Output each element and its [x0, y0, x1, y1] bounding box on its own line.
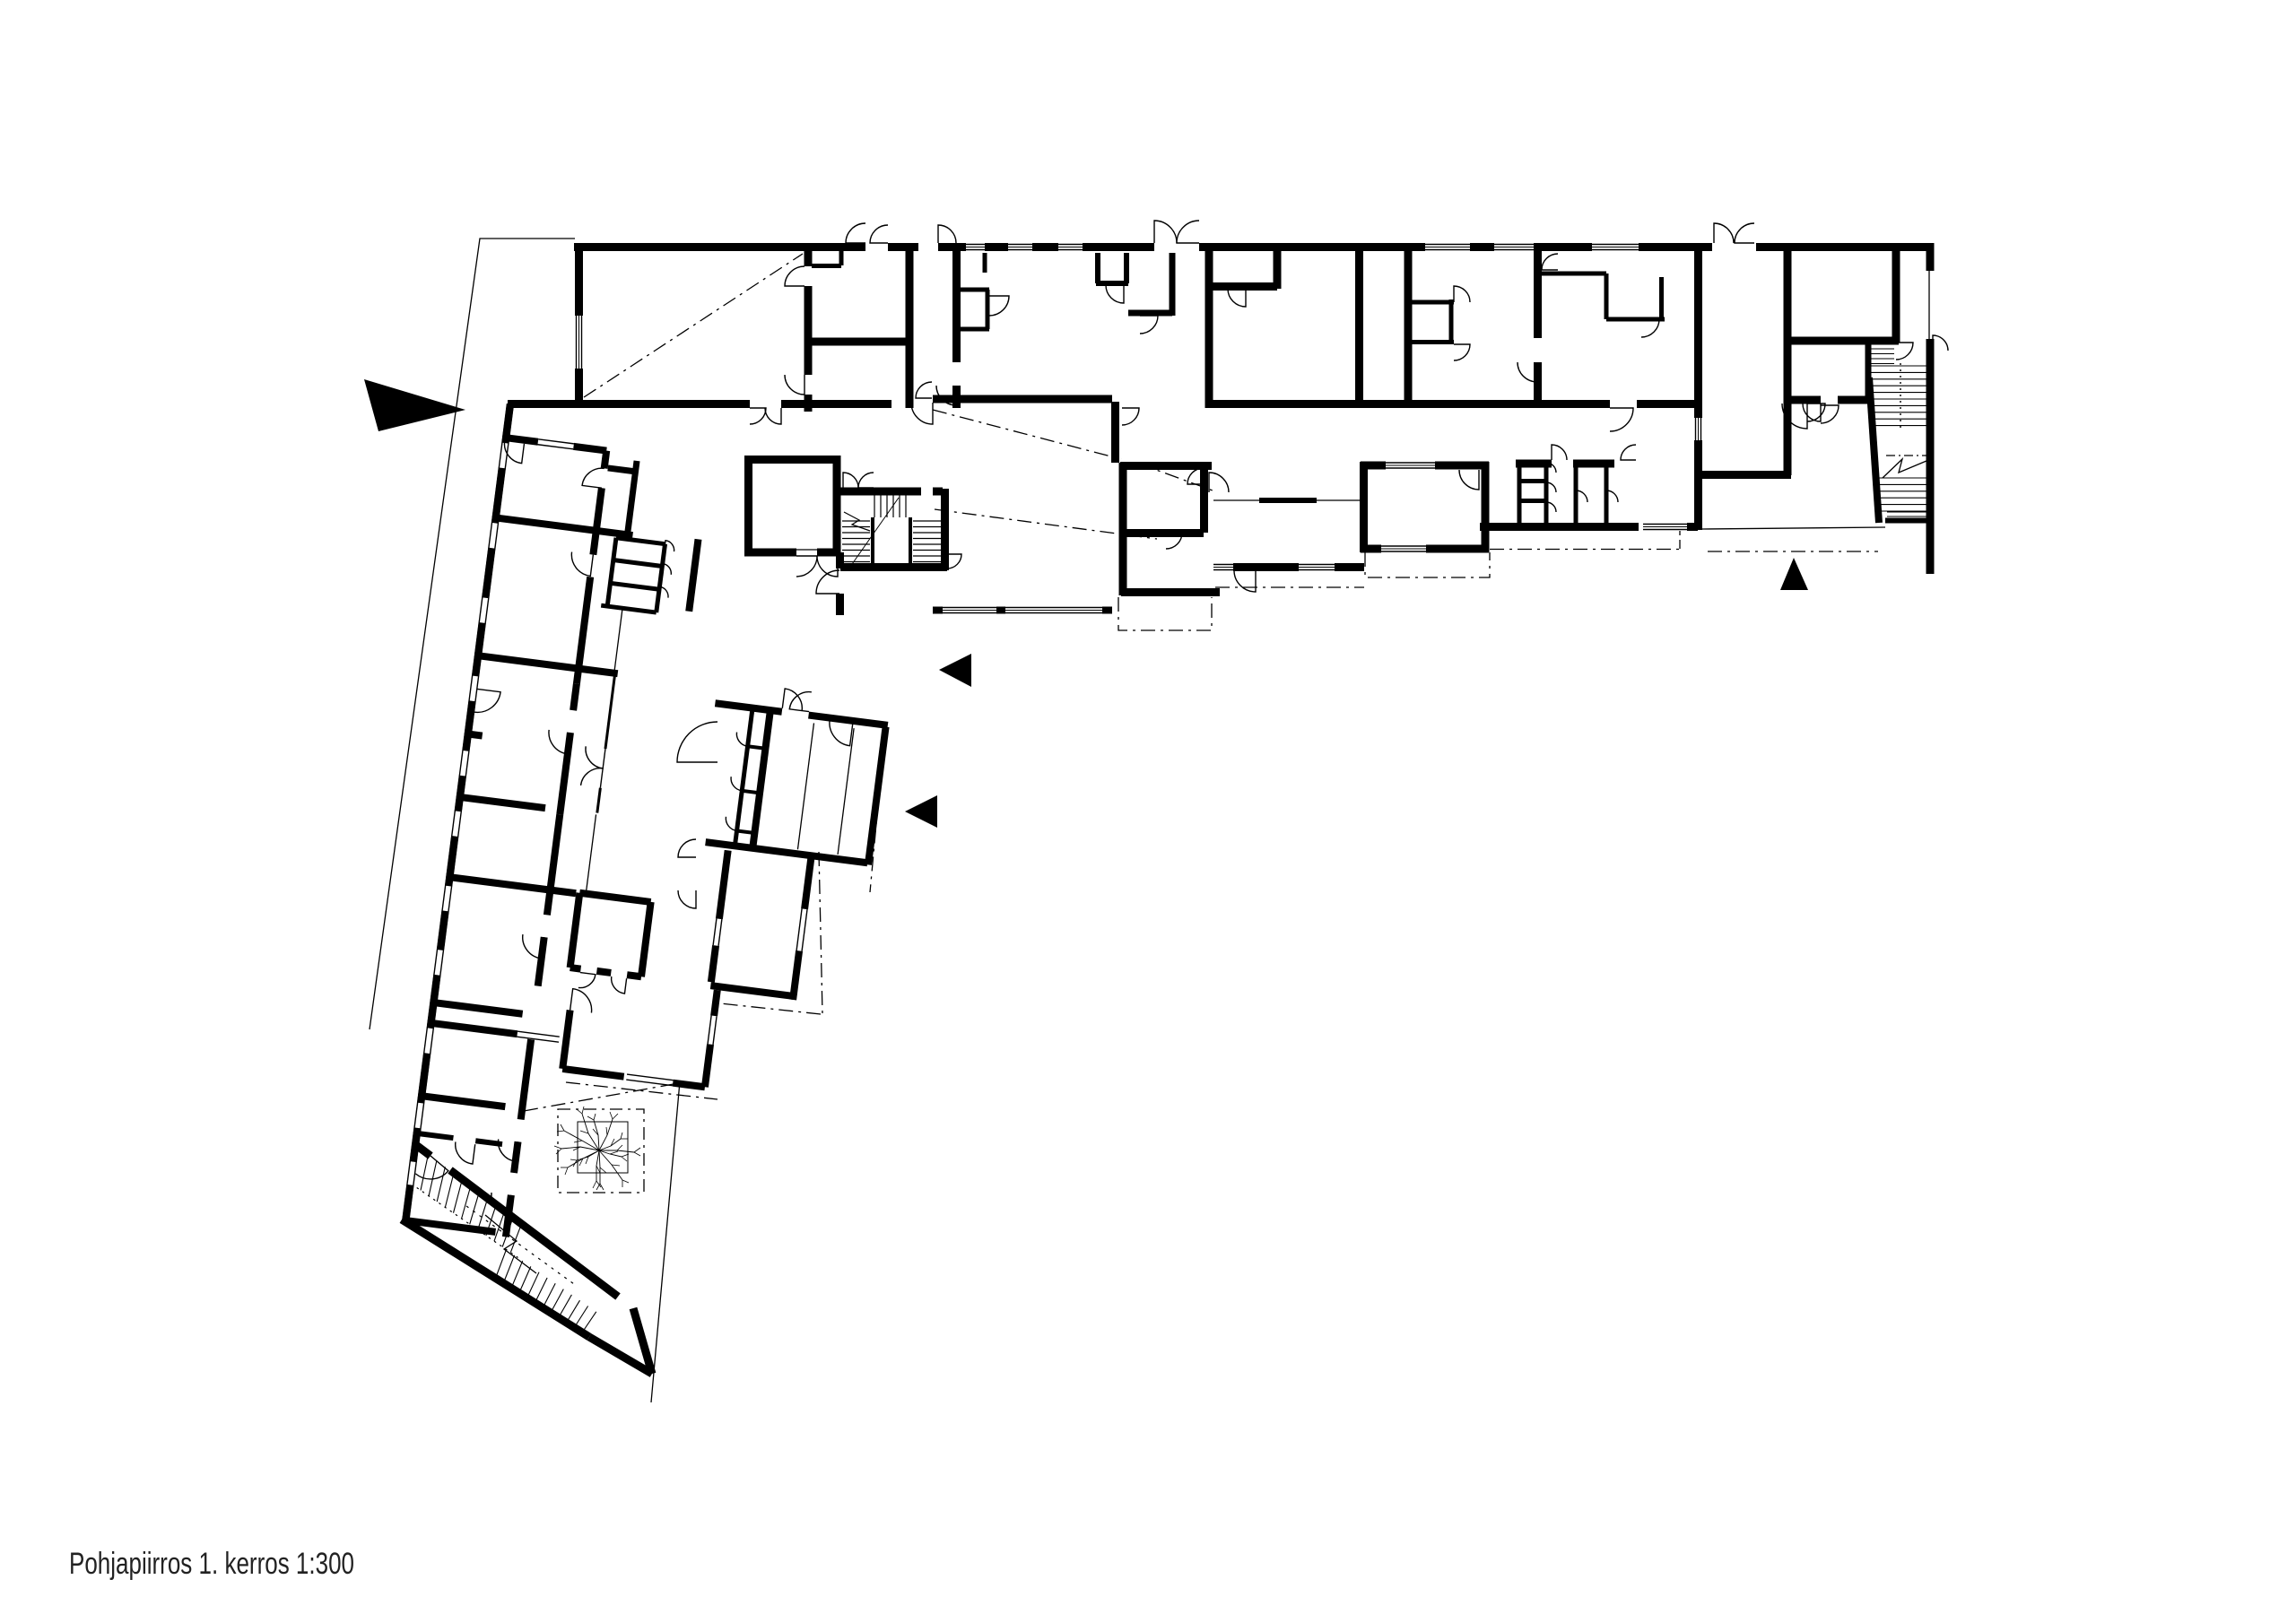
svg-text:Pohjapiirros 1. kerros 1:300: Pohjapiirros 1. kerros 1:300	[69, 1547, 354, 1581]
